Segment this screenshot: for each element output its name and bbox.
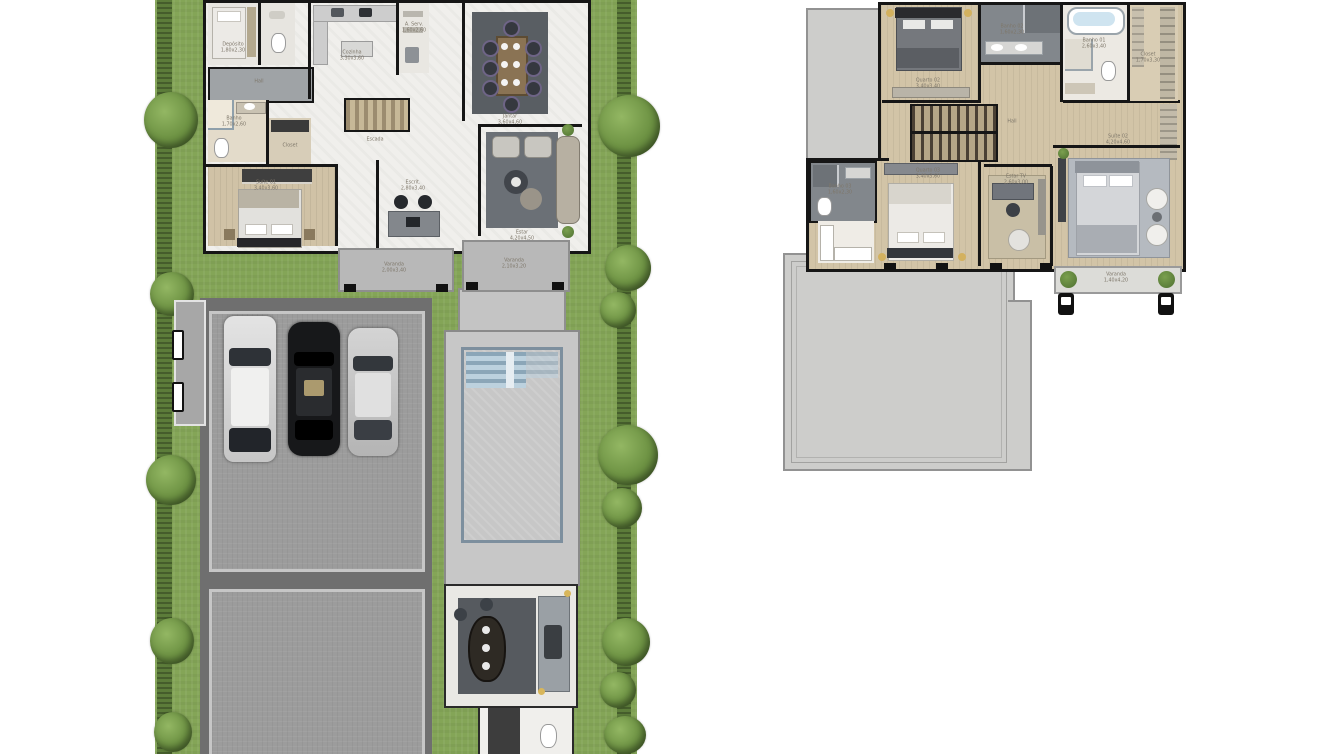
sink	[991, 44, 1003, 51]
plant-icon	[1058, 148, 1069, 159]
toilet	[817, 197, 832, 216]
sedan-silver	[348, 328, 398, 456]
blanket	[889, 184, 951, 204]
pillow	[1109, 175, 1133, 187]
tree-icon	[598, 95, 660, 157]
tub-water	[1073, 12, 1115, 26]
plate	[501, 79, 508, 86]
plate	[482, 626, 490, 634]
wall	[978, 160, 981, 266]
plant-icon	[562, 226, 574, 238]
chair	[482, 60, 499, 77]
closet-nook	[818, 221, 874, 263]
shower	[1065, 39, 1093, 71]
chair	[480, 598, 493, 611]
wardrobe	[247, 7, 256, 57]
nightstand	[304, 229, 315, 240]
office	[380, 163, 446, 245]
light-dot	[538, 688, 545, 695]
vanity	[845, 167, 871, 179]
tree-icon	[600, 292, 636, 328]
light-dot	[564, 590, 571, 597]
desk	[992, 183, 1034, 200]
pillow	[903, 20, 925, 29]
windshield	[294, 352, 334, 366]
nightstand-lamp	[886, 9, 894, 17]
nightstand-lamp	[964, 9, 972, 17]
pool	[461, 347, 563, 543]
toilet	[540, 724, 557, 748]
plate	[482, 662, 490, 670]
bed-double	[888, 183, 954, 261]
suv-silver	[224, 316, 276, 462]
wardrobe	[242, 169, 312, 184]
chair	[525, 40, 542, 57]
plant-icon	[1060, 271, 1077, 288]
window-marker	[1058, 293, 1074, 315]
wall	[981, 62, 1061, 65]
suite-closet	[269, 118, 311, 164]
nightstand-lamp	[958, 253, 966, 261]
pillow	[217, 11, 241, 22]
wall	[1050, 166, 1053, 266]
bathroom3	[809, 161, 877, 223]
pool-wc	[478, 706, 574, 754]
driveway-slab-2	[209, 589, 425, 754]
dining-table-oval	[468, 616, 506, 682]
plate	[482, 644, 490, 652]
pool-step-rail	[506, 352, 514, 388]
master-balcony	[1054, 266, 1182, 294]
wardrobe	[271, 120, 309, 132]
monitor	[406, 217, 420, 227]
tree-icon	[154, 712, 192, 752]
car-roof	[355, 373, 391, 417]
wall	[478, 124, 481, 236]
chair	[454, 608, 467, 621]
wall	[882, 100, 981, 103]
chair	[1006, 203, 1020, 217]
ottoman	[520, 188, 542, 210]
curb-mark	[172, 382, 184, 412]
shelf	[1038, 179, 1046, 235]
sink	[269, 11, 285, 19]
pillar	[990, 263, 1002, 270]
dresser	[884, 163, 958, 175]
grill	[544, 625, 562, 659]
tree-icon	[602, 618, 650, 666]
living-room-rug	[486, 132, 558, 228]
pillow	[1083, 175, 1107, 187]
washer	[405, 47, 419, 63]
toilet	[214, 138, 229, 158]
chair	[503, 96, 520, 113]
chair	[418, 195, 432, 209]
master-bedroom	[1054, 148, 1178, 264]
tv-room	[984, 167, 1050, 264]
wardrobe	[1160, 7, 1175, 99]
stairs-upper	[910, 104, 998, 162]
counter	[834, 247, 872, 261]
wall	[335, 164, 338, 246]
plate	[501, 43, 508, 50]
headboard	[1075, 161, 1139, 173]
pillow	[931, 20, 953, 29]
headboard	[887, 248, 953, 258]
bed-double	[896, 7, 962, 71]
rear-window	[354, 420, 392, 440]
blanket	[897, 48, 959, 68]
gourmet-area	[444, 584, 578, 708]
blanket	[239, 190, 299, 208]
tree-icon	[144, 92, 198, 148]
kitchen-counter	[313, 5, 397, 22]
toilet	[1101, 61, 1116, 81]
chaise-sofa	[556, 136, 580, 224]
shelf	[403, 27, 423, 33]
chair	[503, 20, 520, 37]
shower	[813, 165, 839, 187]
walk-in-closet	[1130, 5, 1178, 101]
stairs-ground	[344, 98, 410, 132]
window-marker	[1158, 293, 1174, 315]
plant-icon	[562, 124, 574, 136]
armchair	[492, 136, 520, 158]
pouf	[1008, 229, 1030, 251]
windshield	[353, 356, 393, 371]
pillar	[344, 284, 356, 292]
stair-rail	[912, 131, 996, 134]
wall	[376, 160, 379, 248]
pillar	[466, 282, 478, 290]
armchair	[524, 136, 552, 158]
bathroom2	[981, 5, 1060, 63]
bed-double	[1076, 162, 1140, 256]
headboard	[895, 8, 961, 18]
pillar	[1040, 263, 1052, 270]
shower	[1023, 5, 1062, 33]
pillow	[271, 224, 293, 235]
bed-single	[212, 7, 246, 59]
pillar	[884, 263, 896, 270]
stove	[359, 8, 372, 17]
tree-icon	[146, 455, 196, 505]
headboard	[237, 238, 301, 247]
shower	[208, 100, 234, 130]
shelf	[403, 11, 423, 17]
armchair	[1146, 188, 1168, 210]
tree-icon	[600, 672, 636, 708]
floor-plan-image: Depósito 1,80x2,30 Hall Cozinha 3,30x3,6…	[0, 0, 1342, 754]
pillar	[936, 263, 948, 270]
side-table	[1152, 212, 1162, 222]
tray	[511, 177, 521, 187]
plant-icon	[1158, 271, 1175, 288]
chair	[482, 40, 499, 57]
sink	[244, 103, 255, 110]
curb-mark	[172, 330, 184, 360]
bedroom3	[878, 161, 978, 264]
plate	[501, 61, 508, 68]
nightstand	[224, 229, 235, 240]
wardrobe	[1132, 7, 1144, 67]
kitchen	[311, 3, 399, 79]
pillar	[436, 284, 448, 292]
dining-room-rug	[472, 12, 548, 114]
tree-icon	[150, 618, 194, 664]
chair	[482, 80, 499, 97]
plate	[513, 79, 520, 86]
tree-icon	[604, 716, 646, 754]
windshield	[229, 348, 271, 366]
wall	[462, 3, 465, 121]
pillow	[245, 224, 267, 235]
dining-table	[496, 36, 528, 96]
vanity	[1065, 83, 1095, 94]
wc-ground	[261, 3, 295, 65]
entry-hall	[208, 67, 314, 103]
service-room	[399, 3, 429, 73]
pillar	[552, 282, 564, 290]
toilet	[271, 33, 286, 53]
kitchen-counter	[313, 21, 328, 65]
pool-steps	[466, 352, 526, 388]
terrace-border-line	[796, 266, 1002, 458]
armchair	[1146, 224, 1168, 246]
plate	[513, 61, 520, 68]
roof-terrace-step	[1008, 300, 1032, 471]
sunroof	[304, 380, 324, 396]
tree-icon	[605, 245, 651, 291]
counter	[820, 225, 834, 261]
chair	[525, 80, 542, 97]
suite1-floor	[208, 167, 335, 246]
pool-steps	[526, 352, 558, 378]
pillow	[923, 232, 945, 243]
rear-window	[295, 420, 333, 440]
tree-icon	[602, 488, 642, 528]
sink	[1015, 44, 1027, 51]
chair	[525, 60, 542, 77]
tv-console	[1058, 158, 1066, 222]
tree-icon	[598, 425, 658, 485]
sedan-black	[288, 322, 340, 456]
bed-double	[238, 189, 302, 248]
dresser	[892, 87, 970, 98]
plate	[513, 43, 520, 50]
island	[341, 41, 373, 57]
nightstand-lamp	[878, 253, 886, 261]
suite-bathroom	[208, 100, 266, 162]
chair	[394, 195, 408, 209]
sink	[331, 8, 344, 17]
car-roof	[231, 368, 269, 426]
blanket	[1077, 225, 1137, 253]
rear-window	[229, 428, 271, 452]
bathtub	[1067, 7, 1125, 35]
pillow	[897, 232, 919, 243]
roof-terrace	[783, 253, 1015, 471]
maid-room	[208, 3, 258, 65]
master-bathroom	[1063, 5, 1127, 101]
grill-counter	[538, 596, 570, 692]
bedroom2	[882, 5, 978, 101]
doorway	[488, 708, 520, 754]
